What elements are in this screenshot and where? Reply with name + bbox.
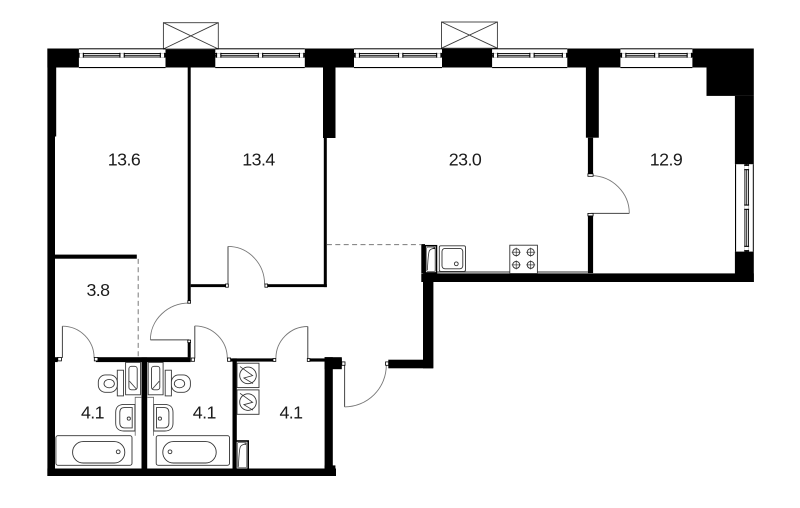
svg-text:13.4: 13.4 [242,149,275,169]
svg-text:23.0: 23.0 [449,149,482,169]
svg-text:4.1: 4.1 [81,403,105,423]
svg-text:12.9: 12.9 [650,149,683,169]
svg-text:3.8: 3.8 [86,280,110,300]
svg-text:4.1: 4.1 [279,403,303,423]
svg-text:13.6: 13.6 [108,149,141,169]
svg-text:4.1: 4.1 [193,403,217,423]
